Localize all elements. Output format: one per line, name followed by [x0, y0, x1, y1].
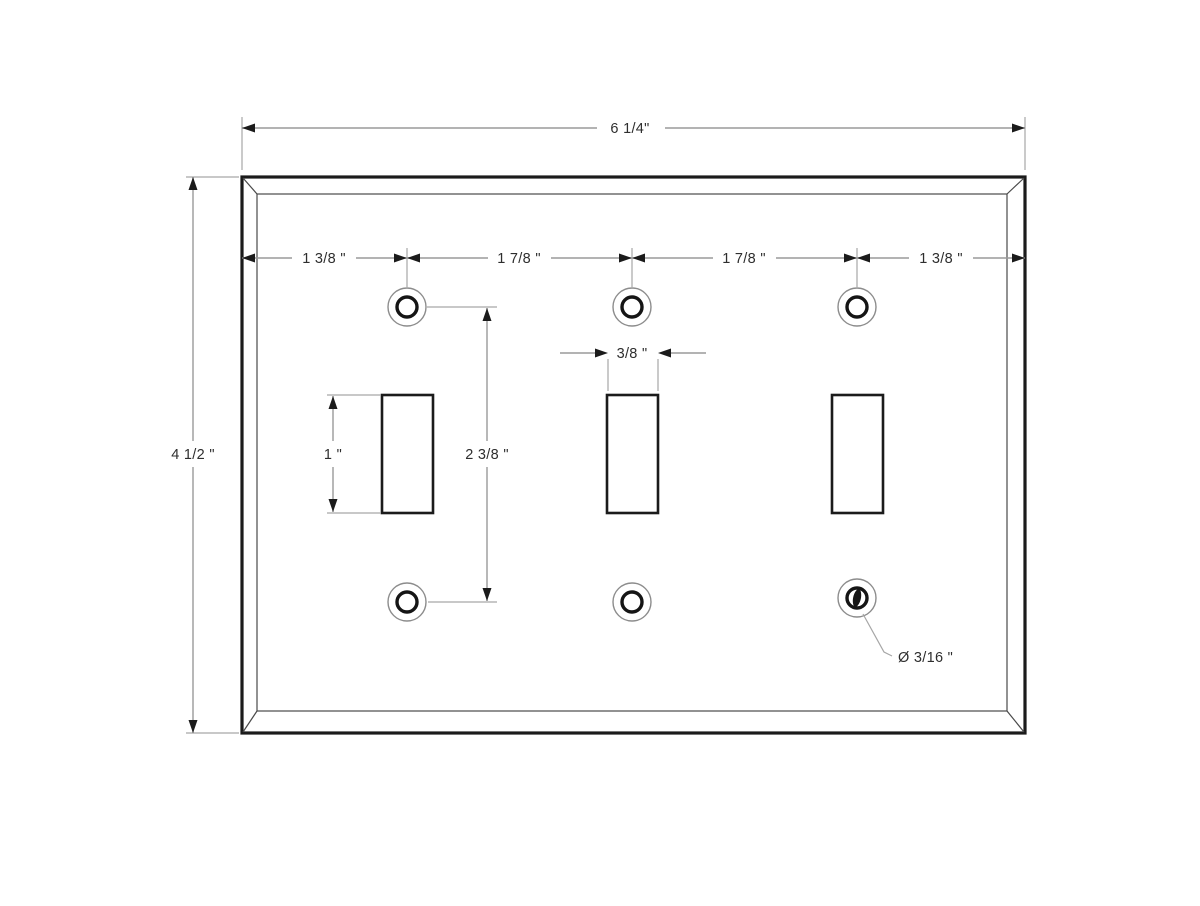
dim-label-hole-diameter: Ø 3/16 ": [898, 650, 953, 666]
dim-label-hole-to-hole-2: 1 7/8 ": [722, 251, 766, 267]
screw-hole-bottom-left: [388, 583, 426, 621]
dim-overall-width: 6 1/4": [242, 117, 1025, 170]
dim-overall-height: 4 1/2 ": [171, 177, 239, 733]
dim-label-hole-to-hole-1: 1 7/8 ": [497, 251, 541, 267]
screw-hole-bottom-middle: [613, 583, 651, 621]
dim-label-overall-height: 4 1/2 ": [171, 447, 215, 463]
toggle-slot-middle: [607, 395, 658, 513]
switch-plate-dimension-drawing: 6 1/4" 4 1/2 ": [0, 0, 1200, 906]
screw-hole-top-middle: [613, 288, 651, 326]
screw-hole-bottom-right-with-screw: [838, 579, 876, 617]
dim-label-left-edge-to-hole: 1 3/8 ": [302, 251, 346, 267]
dim-label-overall-width: 6 1/4": [610, 121, 649, 137]
dim-label-slot-width: 3/8 ": [617, 346, 648, 362]
dim-label-slot-height: 1 ": [324, 447, 342, 463]
dim-label-hole-to-right-edge: 1 3/8 ": [919, 251, 963, 267]
screw-hole-top-left: [388, 288, 426, 326]
drawing-canvas: 6 1/4" 4 1/2 ": [0, 0, 1200, 906]
toggle-slot-left: [382, 395, 433, 513]
dim-label-hole-vertical-spacing: 2 3/8 ": [465, 447, 509, 463]
toggle-slot-right: [832, 395, 883, 513]
screw-hole-top-right: [838, 288, 876, 326]
